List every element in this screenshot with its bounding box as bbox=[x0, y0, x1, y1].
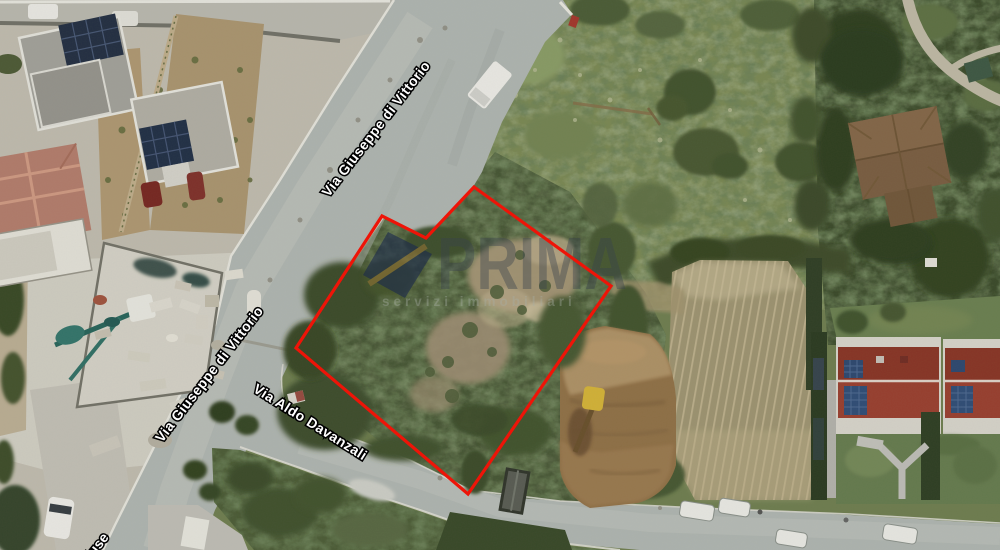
svg-text:PRIMA: PRIMA bbox=[437, 222, 627, 305]
svg-text:servizi immobiliari: servizi immobiliari bbox=[382, 294, 576, 309]
